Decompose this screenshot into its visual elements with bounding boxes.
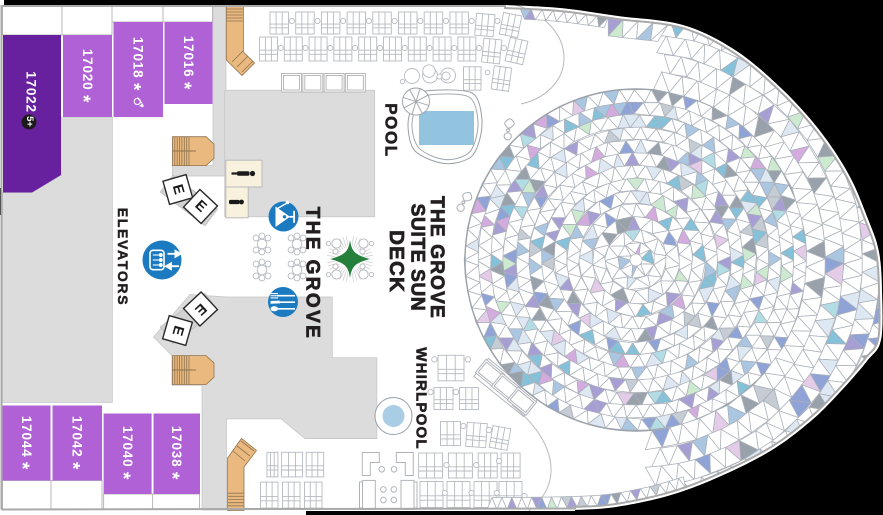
- svg-text:ELEVATORS: ELEVATORS: [115, 208, 131, 307]
- svg-text:POOL: POOL: [382, 103, 401, 158]
- svg-text:THE GROVE: THE GROVE: [426, 196, 447, 319]
- svg-text:SUITE SUN: SUITE SUN: [406, 204, 427, 312]
- svg-text:5+: 5+: [24, 116, 35, 127]
- svg-text:17022: 17022: [24, 71, 39, 113]
- svg-text:WHIRLPOOL: WHIRLPOOL: [413, 347, 430, 449]
- svg-text:DECK: DECK: [385, 230, 408, 293]
